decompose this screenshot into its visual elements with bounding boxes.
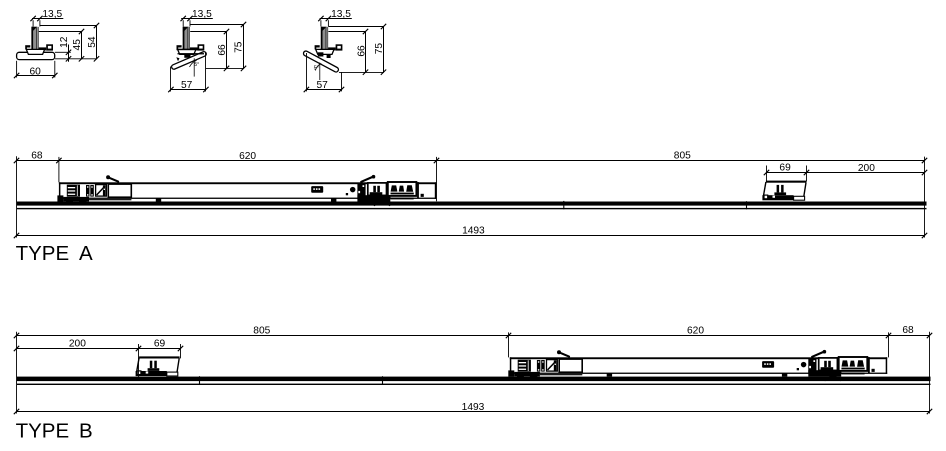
svg-text:TYPE: TYPE [16, 242, 70, 265]
svg-text:5°: 5° [194, 62, 199, 68]
svg-text:75: 75 [234, 41, 245, 53]
svg-text:200: 200 [858, 163, 875, 174]
svg-text:13,5: 13,5 [331, 9, 351, 20]
svg-text:57: 57 [181, 80, 193, 91]
svg-text:TYPE: TYPE [16, 419, 70, 442]
svg-text:54: 54 [87, 36, 98, 48]
svg-text:45: 45 [72, 39, 83, 51]
svg-text:13,5: 13,5 [42, 9, 62, 20]
svg-text:B: B [79, 419, 93, 442]
svg-text:68: 68 [31, 151, 43, 162]
svg-text:620: 620 [687, 326, 704, 337]
svg-text:5°: 5° [314, 65, 319, 71]
svg-text:805: 805 [674, 150, 691, 161]
svg-text:57: 57 [317, 80, 329, 91]
svg-text:68: 68 [902, 325, 914, 336]
svg-text:66: 66 [357, 45, 368, 57]
svg-text:200: 200 [69, 338, 86, 349]
svg-text:13,5: 13,5 [192, 9, 212, 20]
svg-text:12: 12 [59, 36, 70, 48]
svg-text:66: 66 [217, 44, 228, 56]
svg-text:69: 69 [154, 338, 166, 349]
svg-text:A: A [79, 242, 93, 265]
svg-text:75: 75 [374, 43, 385, 55]
svg-text:60: 60 [30, 66, 42, 77]
svg-text:69: 69 [779, 162, 791, 173]
svg-text:805: 805 [253, 326, 270, 337]
svg-text:1493: 1493 [462, 402, 485, 413]
svg-text:620: 620 [239, 151, 256, 162]
svg-text:1493: 1493 [462, 226, 485, 237]
